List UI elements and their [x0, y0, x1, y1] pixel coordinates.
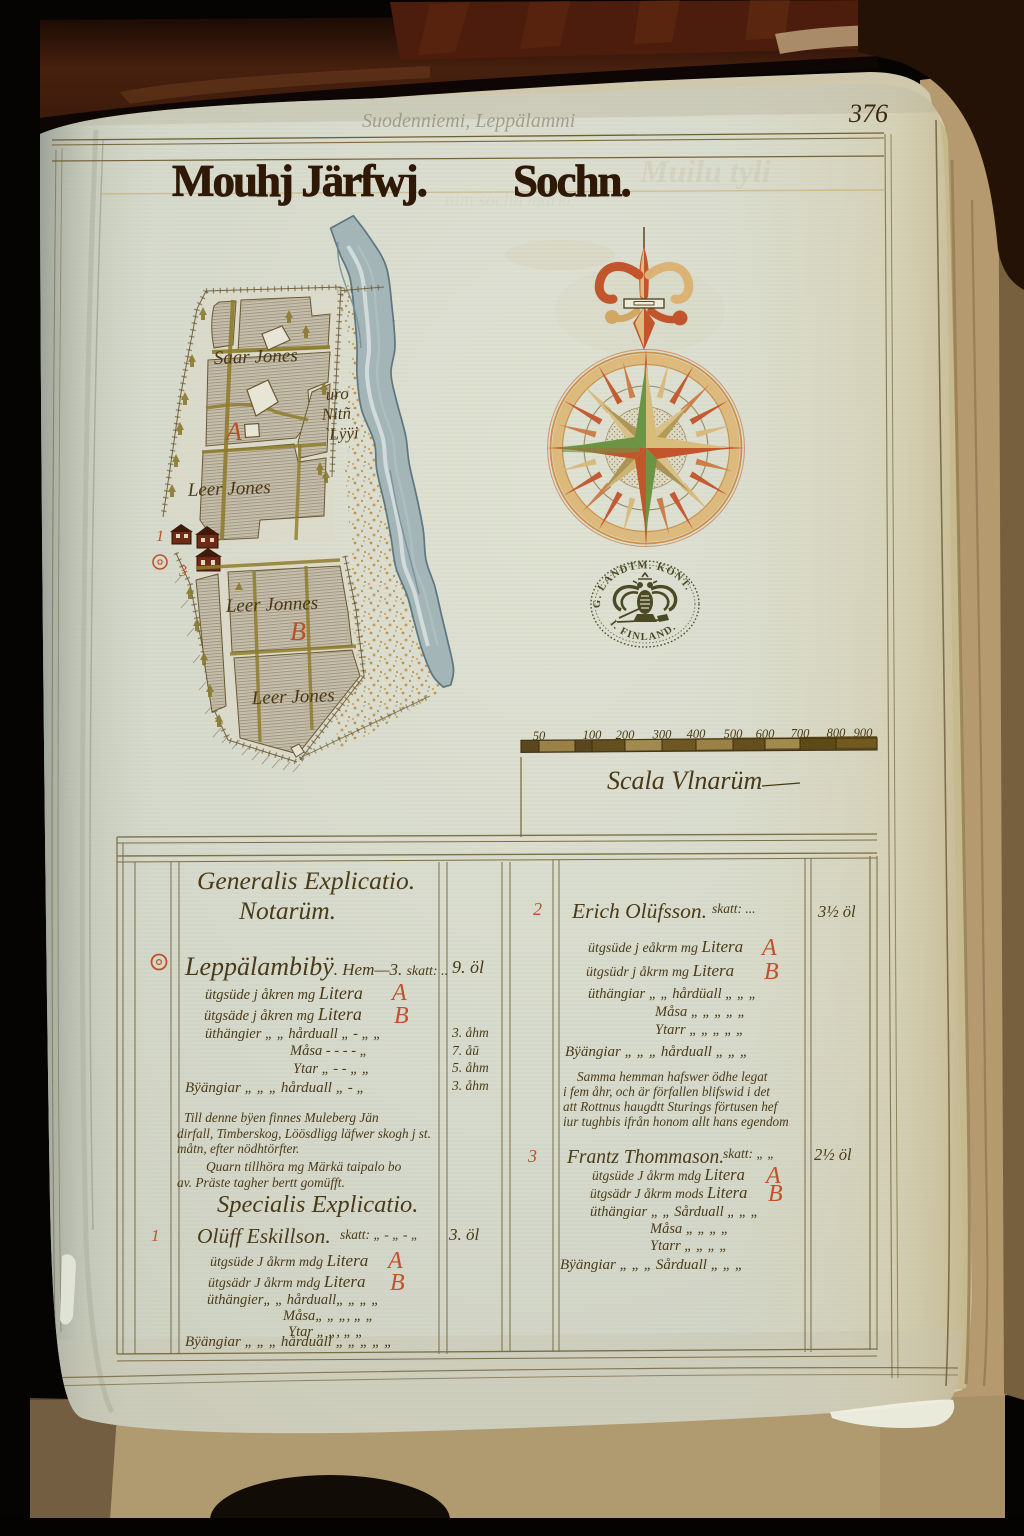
svg-text:Leer Jones: Leer Jones: [250, 685, 335, 709]
svg-text:Sochn.: Sochn.: [513, 156, 631, 206]
svg-text:2: 2: [533, 899, 542, 919]
svg-text:7. åū: 7. åū: [452, 1043, 479, 1058]
svg-text:600: 600: [756, 727, 776, 741]
svg-text:üthängier„ „ hårduall„ „: üthängier„ „ hårduall„ „ „ „: [207, 1292, 379, 1308]
svg-text:Quarn tillhöra mg Märkä taipal: Quarn tillhöra mg Märkä taipalo bo: [206, 1159, 402, 1174]
svg-text:2½ öl: 2½ öl: [814, 1145, 852, 1164]
svg-text:800: 800: [827, 726, 847, 740]
svg-text:att Rottnus haugdtt Sturings f: att Rottnus haugdtt Sturings förtusen he…: [563, 1099, 780, 1114]
svg-text:100: 100: [583, 728, 603, 742]
svg-text:Ytarr „ „ „ „ „: Ytarr „ „ „ „ „: [655, 1022, 744, 1038]
svg-text:skatt: ...: skatt: ...: [712, 901, 756, 916]
svg-text:Notarüm.: Notarüm.: [238, 896, 336, 925]
svg-text:3. åhm: 3. åhm: [451, 1078, 489, 1093]
svg-text:B: B: [290, 617, 306, 646]
svg-text:Nitñ: Nitñ: [320, 403, 352, 424]
svg-text:Muilu tyli: Muilu tyli: [639, 153, 771, 189]
svg-text:3: 3: [527, 1146, 537, 1166]
svg-text:B: B: [768, 1181, 783, 1207]
svg-text:A: A: [224, 417, 242, 446]
svg-text:400: 400: [687, 727, 707, 741]
svg-text:Erich Olüfsson.: Erich Olüfsson.: [571, 899, 707, 923]
svg-text:skatt: „ „: skatt: „ „: [723, 1146, 775, 1161]
svg-text:Specialis Explicatio.: Specialis Explicatio.: [217, 1191, 418, 1218]
svg-text:üthängiar „ „ hårdüall „ „: üthängiar „ „ hårdüall „ „ „: [588, 986, 757, 1002]
svg-text:Bÿängiar „ „ „ hårduall „: Bÿängiar „ „ „ hårduall „ - „: [185, 1080, 365, 1096]
svg-text:Saar Jones: Saar Jones: [213, 345, 298, 369]
svg-text:Samma hemman hafswer ödhe lega: Samma hemman hafswer ödhe legat: [577, 1069, 768, 1084]
svg-text:üthängiar „ „ Sårduall „ „: üthängiar „ „ Sårduall „ „ „: [590, 1204, 759, 1220]
svg-text:ütgsädr J åkrm mods Litera: ütgsädr J åkrm mods Litera: [590, 1183, 747, 1202]
svg-text:376: 376: [848, 99, 888, 128]
svg-text:uro: uro: [325, 384, 349, 404]
svg-text:Ytarr „ „ „ „: Ytarr „ „ „ „: [650, 1238, 727, 1254]
svg-text:Generalis Explicatio.: Generalis Explicatio.: [197, 866, 415, 895]
svg-text:Bÿängiar „ „ „ hårduall „ „: Bÿängiar „ „ „ hårduall „ „ „ „ „: [185, 1334, 392, 1350]
svg-text:B: B: [390, 1270, 405, 1296]
svg-text:ütgsüde J åkrm mdg Litera: ütgsüde J åkrm mdg Litera: [592, 1165, 745, 1184]
svg-text:Scala Vlnarüm: Scala Vlnarüm: [607, 766, 762, 795]
svg-text:üthängier „ „ hårduall „: üthängier „ „ hårduall „ - „ „: [205, 1026, 381, 1042]
svg-text:1: 1: [156, 528, 164, 545]
svg-text:måtn, efter nödhtörfter.: måtn, efter nödhtörfter.: [177, 1141, 299, 1156]
svg-text:Måsa „ „ „ „: Måsa „ „ „ „: [649, 1221, 729, 1237]
svg-text:Ytar „ - - „ „: Ytar „ - - „ „: [293, 1061, 370, 1077]
svg-text:3. åhm: 3. åhm: [451, 1025, 489, 1040]
svg-text:dirfall, Timberskog, Löösdligg: dirfall, Timberskog, Löösdligg läfwer sk…: [177, 1126, 431, 1141]
svg-text:9. öl: 9. öl: [452, 957, 484, 977]
svg-text:Leer Jonnes: Leer Jonnes: [224, 593, 318, 617]
svg-text:Leer Jones: Leer Jones: [186, 477, 271, 501]
svg-text:i fem åhr, och är förfallen bl: i fem åhr, och är förfallen blifswid i d…: [563, 1084, 770, 1099]
svg-text:900: 900: [854, 726, 874, 740]
svg-text:Måsa„ „ „, „ „: Måsa„ „ „, „ „: [282, 1308, 374, 1324]
svg-text:skatt: „ - „ - „: skatt: „ - „ - „: [340, 1227, 418, 1242]
svg-text:700: 700: [791, 727, 811, 741]
svg-text:1: 1: [151, 1226, 160, 1245]
svg-text:Mouhj Järfwj.: Mouhj Järfwj.: [172, 156, 427, 206]
svg-text:Olüff Eskillson.: Olüff Eskillson.: [197, 1224, 331, 1248]
svg-text:Måsa „ „ „ „ „: Måsa „ „ „ „ „: [654, 1004, 746, 1020]
svg-text:Till denne bÿen finnes Muleber: Till denne bÿen finnes Muleberg Jän: [184, 1110, 379, 1125]
svg-text:Suodenniemi, Leppälammi: Suodenniemi, Leppälammi: [362, 110, 575, 132]
svg-text:`Lӱӱi: `Lӱӱi: [323, 423, 359, 444]
svg-text:200: 200: [616, 728, 636, 742]
svg-text:300: 300: [652, 728, 673, 742]
svg-text:Bÿängiar „ „ „ Sårduall „: Bÿängiar „ „ „ Sårduall „ „ „: [560, 1257, 743, 1273]
svg-text:A: A: [760, 935, 777, 961]
svg-text:av. Präste tagher bertt gomüff: av. Präste tagher bertt gomüfft.: [177, 1175, 345, 1190]
svg-text:5. åhm: 5. åhm: [452, 1060, 489, 1075]
svg-text:B: B: [764, 959, 779, 985]
svg-text:500: 500: [724, 727, 744, 741]
svg-text:Måsa - - - - „: Måsa - - - - „: [289, 1043, 368, 1059]
svg-text:3. öl: 3. öl: [448, 1225, 480, 1244]
svg-text:3½ öl: 3½ öl: [817, 902, 856, 921]
svg-text:Bÿängiar „ „ „ hårduall „: Bÿängiar „ „ „ hårduall „ „ „: [565, 1044, 748, 1060]
svg-text:iur tughbis ifrån honom allt h: iur tughbis ifrån honom allt hans egendo…: [563, 1114, 789, 1129]
svg-text:B: B: [394, 1003, 409, 1029]
svg-text:Frantz Thommason.: Frantz Thommason.: [566, 1147, 724, 1168]
svg-text:50: 50: [533, 729, 546, 743]
